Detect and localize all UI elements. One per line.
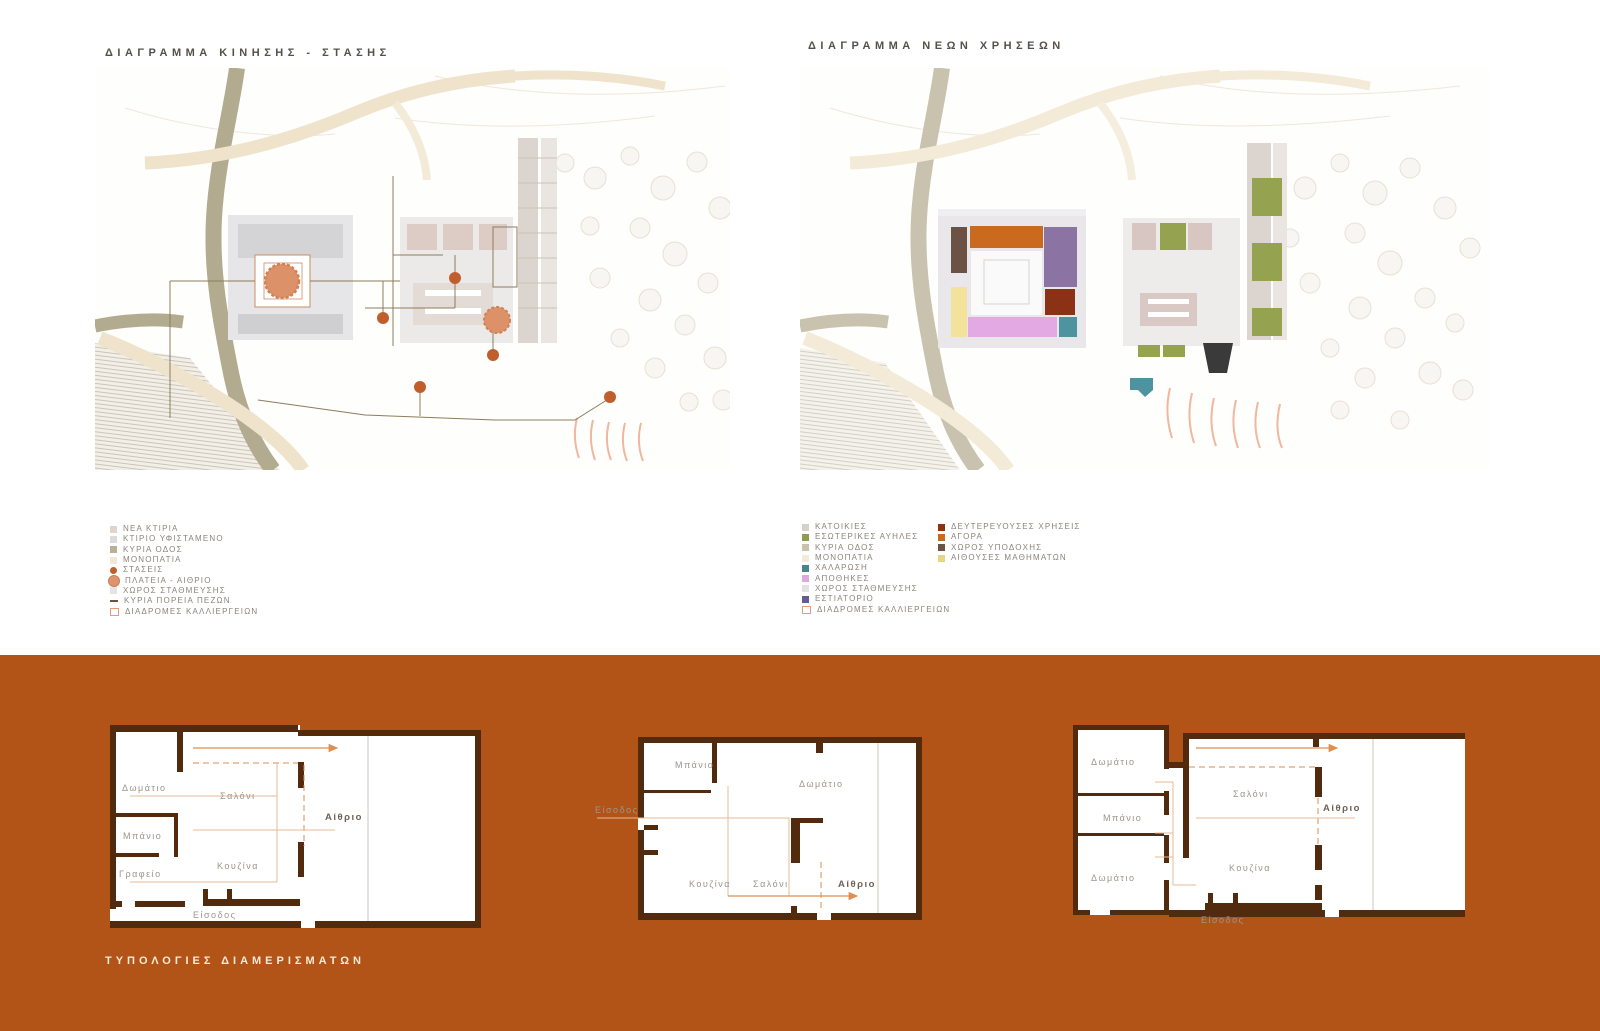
legend-swatch-icon	[802, 606, 811, 614]
legend-label: ΣΤΑΣΕΙΣ	[123, 565, 163, 575]
plaza-atrium-secondary	[484, 307, 510, 333]
legend-swatch-icon	[110, 546, 117, 553]
legend-item: ΠΛΑΤΕΙΑ - ΑΙΘΡΙΟ	[110, 575, 258, 585]
room-label-living: Σαλόνι	[220, 791, 256, 801]
legend-swatch-icon	[802, 565, 809, 572]
courtyard-block	[1160, 223, 1186, 250]
legend-swatch-icon	[110, 536, 117, 543]
legend-item: ΑΙΘΟΥΣΕΣ ΜΑΘΗΜΑΤΩΝ	[938, 553, 1081, 563]
room-label-kitchen: Κουζίνα	[217, 861, 259, 871]
room-label-atrium: Αίθριο	[325, 812, 363, 823]
legend-swatch-icon	[938, 544, 945, 551]
apartment-plan-b: Μπάνιο Δωμάτιο Είσοδος Κουζίνα Σαλόνι Αί…	[595, 710, 930, 925]
room-label-bedroom1: Δωμάτιο	[1091, 757, 1136, 767]
apartment-plan-a: Δωμάτιο Σαλόνι Μπάνιο Γραφείο Κουζίνα Εί…	[105, 703, 483, 931]
classrooms-block	[951, 287, 967, 337]
legend-item: ΚΥΡΙΑ ΠΟΡΕΙΑ ΠΕΖΩΝ	[110, 596, 258, 606]
movement-legend: ΝΕΑ ΚΤΙΡΙΑ ΚΤΙΡΙΟ ΥΦΙΣΤΑΜΕΝΟ ΚΥΡΙΑ ΟΔΟΣ …	[110, 524, 258, 617]
legend-swatch-icon	[938, 555, 945, 562]
legend-label: ΠΛΑΤΕΙΑ - ΑΙΘΡΙΟ	[125, 576, 212, 586]
legend-item: ΚΑΤΟΙΚΙΕΣ	[802, 522, 950, 532]
legend-swatch-icon	[110, 557, 117, 564]
courtyard-block	[1163, 345, 1185, 357]
room-label-office: Γραφείο	[119, 869, 162, 879]
legend-label: ΚΥΡΙΑ ΠΟΡΕΙΑ ΠΕΖΩΝ	[124, 596, 231, 606]
uses-legend-col1: ΚΑΤΟΙΚΙΕΣ ΕΣΩΤΕΡΙΚΕΣ ΑΥΗΛΕΣ ΚΥΡΙΑ ΟΔΟΣ Μ…	[802, 522, 950, 615]
presentation-board: ΔΙΑΓΡΑΜΜΑ ΚΙΝΗΣΗΣ - ΣΤΑΣΗΣ ΔΙΑΓΡΑΜΜΑ ΝΕΩ…	[0, 0, 1600, 1031]
legend-item: ΚΥΡΙΑ ΟΔΟΣ	[802, 543, 950, 553]
room-label-entrance: Είσοδος	[193, 910, 236, 920]
movement-diagram-title: ΔΙΑΓΡΑΜΜΑ ΚΙΝΗΣΗΣ - ΣΤΑΣΗΣ	[105, 47, 391, 59]
legend-swatch-icon	[802, 544, 809, 551]
legend-item: ΚΥΡΙΑ ΟΔΟΣ	[110, 545, 258, 555]
uses-diagram-title: ΔΙΑΓΡΑΜΜΑ ΝΕΩΝ ΧΡΗΣΕΩΝ	[808, 40, 1065, 52]
room-label-entrance: Είσοδος	[1201, 915, 1244, 925]
legend-swatch-icon	[802, 575, 809, 582]
legend-item: ΚΤΙΡΙΟ ΥΦΙΣΤΑΜΕΝΟ	[110, 534, 258, 544]
legend-swatch-icon	[802, 524, 809, 531]
legend-label: ΧΩΡΟΣ ΥΠΟΔΟΧΗΣ	[951, 543, 1042, 553]
legend-label: ΔΙΑΔΡΟΜΕΣ ΚΑΛΛΙΕΡΓΕΙΩΝ	[125, 607, 258, 617]
legend-item: ΜΟΝΟΠΑΤΙΑ	[802, 553, 950, 563]
typologies-title: ΤΥΠΟΛΟΓΙΕΣ ΔΙΑΜΕΡΙΣΜΑΤΩΝ	[105, 955, 365, 967]
movement-site-plan	[95, 68, 730, 470]
courtyard-block	[1252, 308, 1282, 336]
room-label-entrance: Είσοδος	[595, 805, 638, 815]
legend-item: ΧΩΡΟΣ ΣΤΑΘΜΕΥΣΗΣ	[802, 584, 950, 594]
legend-item: ΕΣΤΙΑΤΟΡΙΟ	[802, 594, 950, 604]
legend-label: ΔΕΥΤΕΡΕΥΟΥΣΕΣ ΧΡΗΣΕΙΣ	[951, 522, 1081, 532]
legend-item: ΝΕΑ ΚΤΙΡΙΑ	[110, 524, 258, 534]
legend-swatch-icon	[938, 534, 945, 541]
legend-label: ΧΩΡΟΣ ΣΤΑΘΜΕΥΣΗΣ	[815, 584, 918, 594]
legend-swatch-icon	[110, 526, 117, 533]
legend-swatch-icon	[802, 555, 809, 562]
legend-swatch-icon	[938, 524, 945, 531]
typologies-band: Δωμάτιο Σαλόνι Μπάνιο Γραφείο Κουζίνα Εί…	[0, 655, 1600, 1031]
legend-swatch-icon	[110, 567, 117, 574]
room-label-atrium: Αίθριο	[1323, 803, 1361, 814]
uses-legend-col2: ΔΕΥΤΕΡΕΥΟΥΣΕΣ ΧΡΗΣΕΙΣ ΑΓΟΡΑ ΧΩΡΟΣ ΥΠΟΔΟΧ…	[938, 522, 1081, 563]
legend-item: ΔΙΑΔΡΟΜΕΣ ΚΑΛΛΙΕΡΓΕΙΩΝ	[802, 604, 950, 614]
room-label-bedroom: Δωμάτιο	[122, 783, 167, 793]
relaxation-south-block	[1130, 378, 1153, 397]
legend-item: ΧΩΡΟΣ ΣΤΑΘΜΕΥΣΗΣ	[110, 586, 258, 596]
legend-label: ΑΠΟΘΗΚΕΣ	[815, 574, 870, 584]
legend-swatch-icon	[110, 608, 119, 616]
room-label-bath: Μπάνιο	[1103, 813, 1142, 823]
relaxation-block	[1059, 317, 1077, 337]
courtyard-block	[1252, 243, 1282, 281]
legend-label: ΕΣΩΤΕΡΙΚΕΣ ΑΥΗΛΕΣ	[815, 532, 918, 542]
legend-label: ΧΑΛΑΡΩΣΗ	[815, 563, 868, 573]
legend-item: ΔΙΑΔΡΟΜΕΣ ΚΑΛΛΙΕΡΓΕΙΩΝ	[110, 606, 258, 616]
legend-label: ΝΕΑ ΚΤΙΡΙΑ	[123, 524, 179, 534]
room-label-atrium: Αίθριο	[838, 879, 876, 890]
legend-label: ΚΤΙΡΙΟ ΥΦΙΣΤΑΜΕΝΟ	[123, 534, 224, 544]
legend-item: ΜΟΝΟΠΑΤΙΑ	[110, 555, 258, 565]
legend-item: ΔΕΥΤΕΡΕΥΟΥΣΕΣ ΧΡΗΣΕΙΣ	[938, 522, 1081, 532]
legend-swatch-icon	[802, 585, 809, 592]
room-label-bedroom2: Δωμάτιο	[1091, 873, 1136, 883]
legend-label: ΚΥΡΙΑ ΟΔΟΣ	[815, 543, 875, 553]
room-label-bath: Μπάνιο	[123, 831, 162, 841]
secondary-uses-block	[1045, 289, 1075, 315]
legend-item: ΑΠΟΘΗΚΕΣ	[802, 573, 950, 583]
room-label-bath: Μπάνιο	[675, 760, 714, 770]
uses-site-plan	[800, 68, 1490, 470]
legend-label: ΜΟΝΟΠΑΤΙΑ	[815, 553, 874, 563]
legend-label: ΔΙΑΔΡΟΜΕΣ ΚΑΛΛΙΕΡΓΕΙΩΝ	[817, 605, 950, 615]
dark-wedge-block	[1203, 343, 1233, 373]
room-label-living: Σαλόνι	[1233, 789, 1269, 799]
legend-label: ΕΣΤΙΑΤΟΡΙΟ	[815, 594, 874, 604]
courtyard-block	[1252, 178, 1282, 216]
new-uses-right-complex	[1123, 143, 1287, 397]
legend-swatch-icon	[108, 575, 120, 587]
storage-block	[968, 317, 1057, 337]
restaurant-block	[1044, 227, 1077, 287]
legend-label: ΧΩΡΟΣ ΣΤΑΘΜΕΥΣΗΣ	[123, 586, 226, 596]
room-label-bedroom: Δωμάτιο	[799, 779, 844, 789]
legend-label: ΑΓΟΡΑ	[951, 532, 983, 542]
legend-item: ΑΓΟΡΑ	[938, 532, 1081, 542]
plaza-atrium-main	[265, 264, 299, 298]
legend-item: ΣΤΑΣΕΙΣ	[110, 565, 258, 575]
legend-label: ΜΟΝΟΠΑΤΙΑ	[123, 555, 182, 565]
reception-block	[951, 227, 967, 273]
room-label-living: Σαλόνι	[753, 879, 789, 889]
courtyard-block	[1138, 345, 1160, 357]
agora-block	[970, 226, 1043, 248]
legend-label: ΚΥΡΙΑ ΟΔΟΣ	[123, 545, 183, 555]
legend-item: ΧΩΡΟΣ ΥΠΟΔΟΧΗΣ	[938, 543, 1081, 553]
apartment-plan-c: Δωμάτιο Μπάνιο Δωμάτιο Σαλόνι Κουζίνα Εί…	[1065, 705, 1470, 927]
room-label-kitchen: Κουζίνα	[689, 879, 731, 889]
new-uses-main-complex	[938, 209, 1086, 348]
legend-label: ΑΙΘΟΥΣΕΣ ΜΑΘΗΜΑΤΩΝ	[951, 553, 1067, 563]
legend-item: ΧΑΛΑΡΩΣΗ	[802, 563, 950, 573]
legend-swatch-icon	[110, 587, 117, 594]
legend-label: ΚΑΤΟΙΚΙΕΣ	[815, 522, 867, 532]
legend-item: ΕΣΩΤΕΡΙΚΕΣ ΑΥΗΛΕΣ	[802, 532, 950, 542]
room-label-kitchen: Κουζίνα	[1229, 863, 1271, 873]
legend-swatch-icon	[802, 596, 809, 603]
legend-swatch-icon	[802, 534, 809, 541]
legend-swatch-icon	[110, 600, 118, 602]
